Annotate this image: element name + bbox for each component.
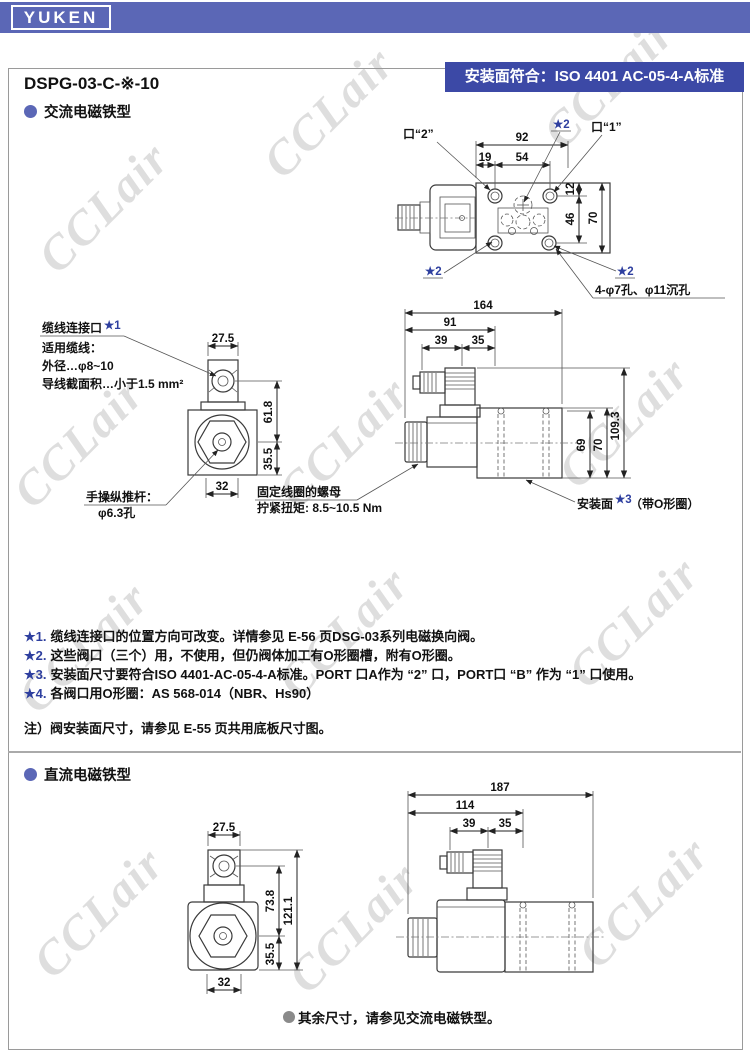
dim-54: 54 [516,152,529,164]
footnote-3-text: 安装面尺寸要符合ISO 4401-AC-05-4-A标准。PORT 口A作为 “… [51,667,642,682]
dim-35: 35 [472,335,485,347]
brand-bar: YUKEN [0,2,750,33]
star2-bottom-left: ★2 [425,265,442,278]
push-rod-hole: φ6.3孔 [98,506,135,520]
footnotes: ★1.缆线连接口的位置方向可改变。详情参见 E-56 页DSG-03系列电磁换向… [24,627,730,703]
section-divider [8,751,741,753]
dim-39-dc: 39 [463,818,476,830]
bullet-icon [24,105,37,118]
cable-spec-3: 导线截面积…小于1.5 mm² [42,376,183,391]
footnote-1-text: 缆线连接口的位置方向可改变。详情参见 E-56 页DSG-03系列电磁换向阀。 [51,629,484,644]
dim-109-3: 109.3 [610,412,622,441]
top-view-dimensions: 92 19 54 12 46 70 [476,132,602,253]
footnote-2-star: ★2. [24,648,47,663]
footnote-2: ★2.这些阀口（三个）用，不使用，但仍阀体加工有O形圈槽，附有O形圈。 [24,646,730,665]
star1-label: ★1 [104,319,121,332]
footnote-3: ★3.安装面尺寸要符合ISO 4401-AC-05-4-A标准。PORT 口A作… [24,665,730,684]
mount-oring-label: （带O形圈） [630,496,699,511]
mount-surface-label: 安装面 [577,496,613,511]
dim-91: 91 [444,317,457,329]
dim-114: 114 [456,800,475,812]
dc-side-dimensions: 187 114 39 35 [408,782,593,914]
star2-bottom-right: ★2 [617,265,634,278]
dim-69: 69 [576,439,588,452]
dim-46: 46 [565,213,577,226]
dc-front-view-drawing: 27.5 73.8 35.5 121.1 32 [148,798,406,1006]
footnote-4-text: 各阀口用O形圈：AS 568-014（NBR、Hs90） [51,686,320,701]
port-1-label: 口“1” [591,120,622,134]
yuken-logo: YUKEN [11,5,111,30]
dim-27-5-dc: 27.5 [213,822,236,834]
dc-side-view-drawing: 187 114 39 35 [388,768,750,1008]
footnote-1-star: ★1. [24,629,47,644]
footnote-4-star: ★4. [24,686,47,701]
bullet-icon [24,768,37,781]
ac-front-labels: 缆线连接口 ★1 适用缆线： 外径…φ8~10 导线截面积…小于1.5 mm² … [40,319,218,520]
dim-32-dc: 32 [218,977,231,989]
dim-19: 19 [479,152,492,164]
dim-73-8: 73.8 [265,889,277,912]
dim-92: 92 [516,132,529,144]
footnote-4: ★4.各阀口用O形圈：AS 568-014（NBR、Hs90） [24,684,730,703]
dim-32: 32 [216,481,229,493]
bullet-icon [283,1011,295,1023]
section-ac: 交流电磁铁型 [24,101,131,122]
star2-top: ★2 [553,118,570,131]
cable-port-label: 缆线连接口 [42,320,102,335]
torque-label: 拧紧扭矩: 8.5~10.5 Nm [257,500,382,515]
dc-front-dimensions: 27.5 73.8 35.5 121.1 32 [207,822,303,994]
dim-70-side: 70 [593,439,605,452]
dim-35-dc: 35 [499,818,512,830]
section-ac-label: 交流电磁铁型 [44,101,131,122]
port-2-label: 口“2” [403,127,434,141]
dc-front-outline [188,850,258,970]
dim-39: 39 [435,335,448,347]
model-number: DSPG-03-C-※-10 [24,74,159,94]
dc-footer-text: 其余尺寸，请参见交流电磁铁型。 [298,1007,501,1027]
mounting-standard-badge: 安装面符合：ISO 4401 AC-05-4-A标准 [445,62,744,92]
push-rod-label: 手操纵推杆： [86,489,158,504]
dim-35-5-dc: 35.5 [265,942,277,965]
note-bottom: 注）阀安装面尺寸，请参见 E-55 页共用底板尺寸图。 [24,718,332,737]
footnote-1: ★1.缆线连接口的位置方向可改变。详情参见 E-56 页DSG-03系列电磁换向… [24,627,730,646]
dc-side-outline [396,850,606,972]
coil-nut-label: 固定线圈的螺母 [257,484,341,499]
valve-side-outline [395,368,577,478]
ac-side-dimensions: 164 91 39 35 69 70 109.3 [405,300,631,478]
dim-70: 70 [588,212,600,225]
dim-164: 164 [473,300,493,312]
ac-side-view-drawing: 164 91 39 35 69 70 109.3 固定线圈的螺母 拧紧扭矩: 8… [245,288,747,550]
footnote-3-star: ★3. [24,667,47,682]
dim-12: 12 [565,183,577,196]
solenoid-outline [395,185,476,250]
cable-spec-2: 外径…φ8~10 [42,358,114,373]
dim-121-1: 121.1 [283,896,295,925]
dc-footer: 其余尺寸，请参见交流电磁铁型。 [283,1007,501,1027]
dim-27-5: 27.5 [212,333,235,345]
footnote-2-text: 这些阀口（三个）用，不使用，但仍阀体加工有O形圈槽，附有O形圈。 [51,648,461,663]
cable-spec-1: 适用缆线： [42,340,102,355]
dim-187: 187 [490,782,509,794]
datasheet-page: CCLair CCLair CCLair CCLair CCLair CCLai… [0,0,750,1056]
section-dc-label: 直流电磁铁型 [44,764,131,785]
section-dc: 直流电磁铁型 [24,764,131,785]
